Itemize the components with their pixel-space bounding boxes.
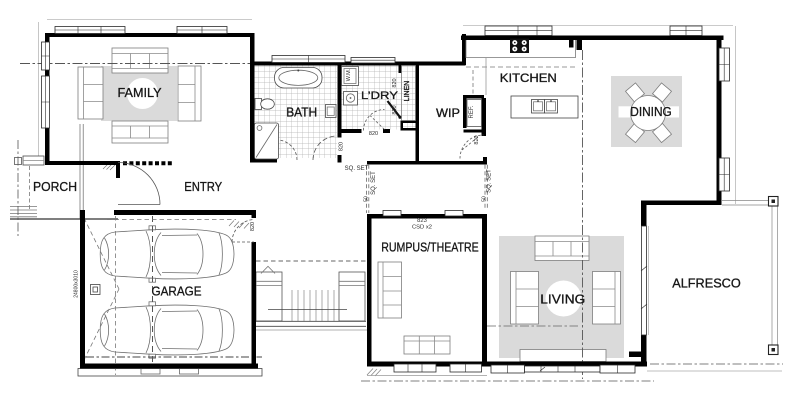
svg-text:820: 820 (474, 135, 480, 144)
svg-text:50: 50 (482, 196, 488, 202)
svg-text:KITCHEN: KITCHEN (500, 71, 557, 85)
svg-text:FAMILY: FAMILY (118, 86, 163, 100)
svg-text:ALFRESCO: ALFRESCO (672, 276, 741, 290)
svg-text:820: 820 (369, 131, 378, 137)
svg-text:W.M.: W.M. (346, 68, 352, 81)
svg-text:SQ. SET: SQ. SET (487, 169, 493, 193)
svg-text:DINING: DINING (630, 105, 672, 119)
svg-text:SQ. SET: SQ. SET (345, 166, 369, 172)
svg-text:PORCH: PORCH (33, 180, 77, 194)
svg-text:BATH: BATH (286, 106, 317, 120)
svg-text:L’DRY: L’DRY (361, 90, 399, 102)
svg-text:820: 820 (339, 142, 345, 151)
svg-text:SQ. SET: SQ. SET (371, 171, 377, 195)
svg-text:820: 820 (392, 105, 398, 114)
svg-text:820: 820 (250, 222, 256, 231)
svg-text:50: 50 (364, 196, 370, 202)
svg-text:LINEN: LINEN (404, 81, 411, 102)
svg-text:24800x3010: 24800x3010 (74, 270, 80, 298)
svg-text:LIVING: LIVING (540, 293, 585, 307)
svg-text:REF.: REF. (469, 105, 475, 118)
svg-text:823: 823 (417, 218, 427, 224)
svg-text:820: 820 (392, 78, 398, 87)
svg-text:CSD x2: CSD x2 (412, 225, 432, 231)
svg-text:ENTRY: ENTRY (184, 180, 223, 194)
svg-text:RUMPUS/THEATRE: RUMPUS/THEATRE (381, 241, 479, 255)
svg-text:GARAGE: GARAGE (152, 285, 202, 299)
svg-text:WIP: WIP (436, 108, 460, 120)
